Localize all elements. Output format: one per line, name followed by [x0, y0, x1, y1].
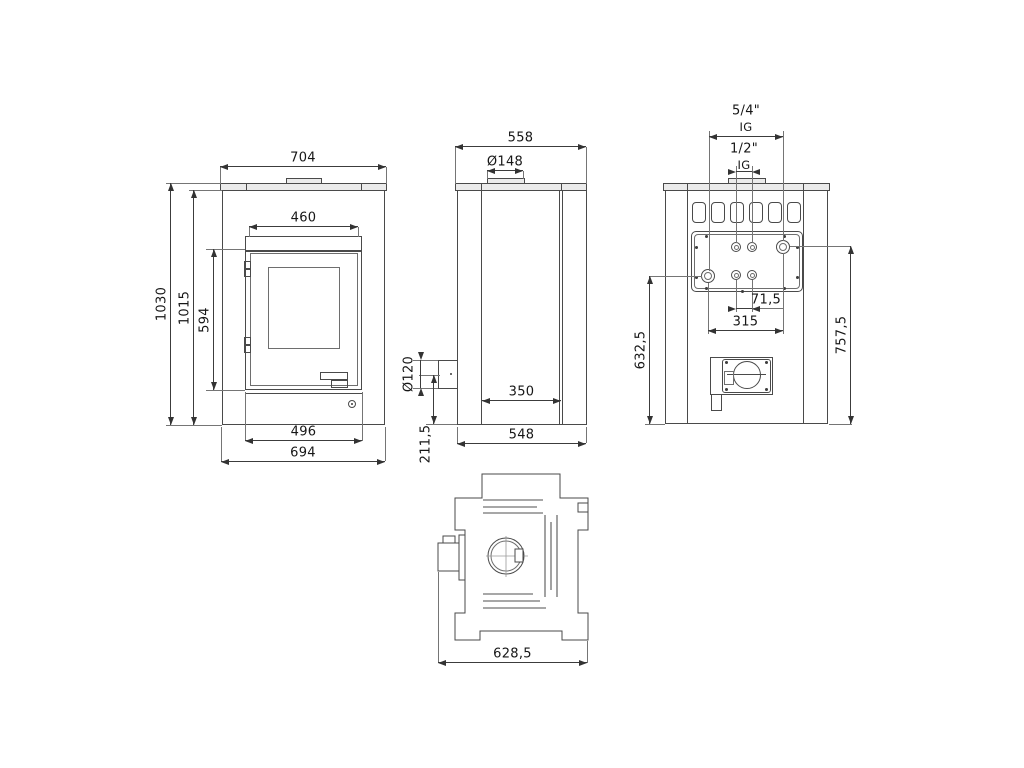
dim-label-d548: 548	[509, 428, 535, 443]
dim-arrow	[848, 246, 854, 254]
dim-line-d548	[457, 443, 586, 444]
technical-drawing-canvas: 70446049669410301015594558Ø148350548Ø120…	[0, 0, 1024, 768]
dim-label-d315: 315	[733, 315, 759, 330]
dim-arrow	[431, 416, 437, 424]
dim-arrow	[553, 398, 561, 404]
dim-arrow	[455, 144, 463, 150]
dim-arrow	[728, 169, 736, 175]
extension-line	[455, 147, 456, 184]
dim-arrow	[579, 660, 587, 666]
extension-line	[386, 167, 387, 184]
extension-line	[708, 283, 709, 334]
dim-arrow	[168, 417, 174, 425]
dim-label-d54: 5/4"	[732, 104, 760, 119]
extension-line	[413, 388, 438, 389]
dim-arrow	[191, 417, 197, 425]
extension-line	[586, 427, 587, 443]
dim-arrow	[647, 416, 653, 424]
dim-line-d54	[709, 136, 783, 137]
dim-arrow	[354, 438, 362, 444]
extension-line	[783, 131, 784, 241]
dim-line-d594	[213, 249, 214, 390]
dim-label-d350: 350	[509, 385, 535, 400]
dim-arrow	[249, 224, 257, 230]
dim-arrow	[752, 169, 760, 175]
dim-label-d211_5: 211,5	[419, 425, 434, 464]
dim-label-dO120: Ø120	[402, 356, 417, 392]
dim-arrow	[457, 441, 465, 447]
dim-line-d460	[249, 226, 358, 227]
extension-line	[649, 276, 702, 277]
extension-line	[358, 227, 359, 237]
dim-line-d315	[708, 330, 783, 331]
extension-line	[752, 166, 753, 243]
dim-line-d350	[482, 400, 561, 401]
extension-line	[736, 166, 737, 243]
extension-line	[829, 424, 852, 425]
extension-line	[790, 246, 851, 247]
dim-label-d558: 558	[508, 131, 534, 146]
dim-arrow	[848, 416, 854, 424]
extension-line	[438, 572, 439, 663]
extension-line	[709, 131, 710, 271]
dim-arrow	[709, 134, 717, 140]
dim-line-d757_5	[850, 246, 851, 424]
dim-arrow	[578, 441, 586, 447]
dim-line-d694	[221, 461, 385, 462]
extension-line	[166, 425, 222, 426]
extension-line	[245, 392, 246, 441]
dim-label-d594: 594	[198, 307, 213, 333]
extension-line	[413, 360, 438, 361]
dim-arrow	[191, 190, 197, 198]
dim-sublabel-d12: IG	[738, 158, 751, 172]
extension-line	[362, 392, 363, 441]
dim-label-d460: 460	[291, 211, 317, 226]
dim-label-d704: 704	[290, 151, 316, 166]
dim-label-d632_5: 632,5	[634, 331, 649, 370]
dim-arrow	[211, 382, 217, 390]
dim-arrow	[775, 328, 783, 334]
extension-line	[586, 147, 587, 184]
dim-label-d694: 694	[290, 446, 316, 461]
dim-arrow	[168, 183, 174, 191]
extension-line	[645, 424, 665, 425]
dim-arrow	[350, 224, 358, 230]
dim-label-d12: 1/2"	[730, 142, 758, 157]
dim-arrow	[221, 459, 229, 465]
dim-arrow	[220, 164, 228, 170]
dim-line-d1030	[170, 183, 171, 425]
dim-arrow	[418, 352, 424, 360]
dim-label-d757_5: 757,5	[835, 316, 850, 355]
extension-line	[206, 390, 245, 391]
dim-label-d1015: 1015	[178, 290, 193, 324]
dim-arrow	[245, 438, 253, 444]
dim-line-d704	[220, 166, 386, 167]
dim-line-d496	[245, 440, 362, 441]
dim-arrow	[578, 144, 586, 150]
dim-label-d496: 496	[291, 425, 317, 440]
dim-label-d628_5: 628,5	[493, 647, 532, 662]
dim-arrow	[211, 249, 217, 257]
dim-arrow	[708, 328, 716, 334]
extension-line	[166, 183, 221, 184]
dim-arrow	[647, 276, 653, 284]
dim-arrow	[378, 164, 386, 170]
dim-line-d558	[455, 146, 586, 147]
dim-line-d1015	[193, 190, 194, 425]
dim-label-d71_5: 71,5	[751, 293, 781, 308]
dim-line-dO120	[420, 360, 421, 388]
dim-sublabel-d54: IG	[740, 120, 753, 134]
extension-line	[385, 427, 386, 461]
dim-arrow	[418, 388, 424, 396]
dim-arrow	[377, 459, 385, 465]
dim-arrow	[431, 375, 437, 383]
extension-line	[523, 171, 524, 179]
dim-arrow	[775, 134, 783, 140]
extension-line	[587, 641, 588, 663]
extension-line	[783, 253, 784, 334]
extension-line	[221, 427, 222, 461]
dim-arrow	[728, 306, 736, 312]
dim-line-d632_5	[649, 276, 650, 424]
dim-label-d1030: 1030	[155, 287, 170, 321]
dim-arrow	[438, 660, 446, 666]
dim-arrow	[482, 398, 490, 404]
dim-line-d71_5	[736, 308, 752, 309]
dim-label-dO148: Ø148	[487, 155, 523, 170]
dim-line-d628_5	[438, 662, 587, 663]
dimensions-layer: 70446049669410301015594558Ø148350548Ø120…	[0, 0, 1024, 768]
